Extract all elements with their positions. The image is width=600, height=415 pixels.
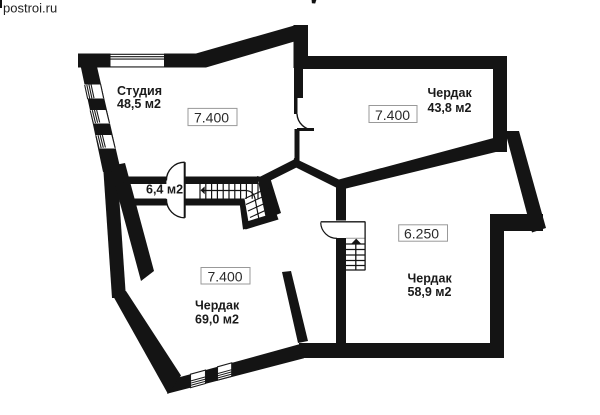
- svg-text:postroi.ru: postroi.ru: [3, 1, 57, 16]
- svg-text:58,9 м2: 58,9 м2: [408, 285, 452, 299]
- svg-text:7.400: 7.400: [375, 107, 410, 123]
- svg-text:69,0 м2: 69,0 м2: [195, 312, 239, 326]
- svg-text:7.400: 7.400: [194, 110, 229, 126]
- svg-text:6,4 м2: 6,4 м2: [146, 182, 183, 196]
- svg-text:6.250: 6.250: [404, 226, 439, 242]
- svg-text:Чердак: Чердак: [408, 272, 453, 286]
- svg-text:Чердак: Чердак: [428, 86, 473, 100]
- svg-text:7.400: 7.400: [208, 268, 243, 284]
- svg-text:48,5 м2: 48,5 м2: [117, 97, 161, 111]
- svg-text:Студия: Студия: [117, 84, 162, 98]
- svg-text:Чердак: Чердак: [195, 299, 240, 313]
- svg-text:43,8 м2: 43,8 м2: [428, 101, 472, 115]
